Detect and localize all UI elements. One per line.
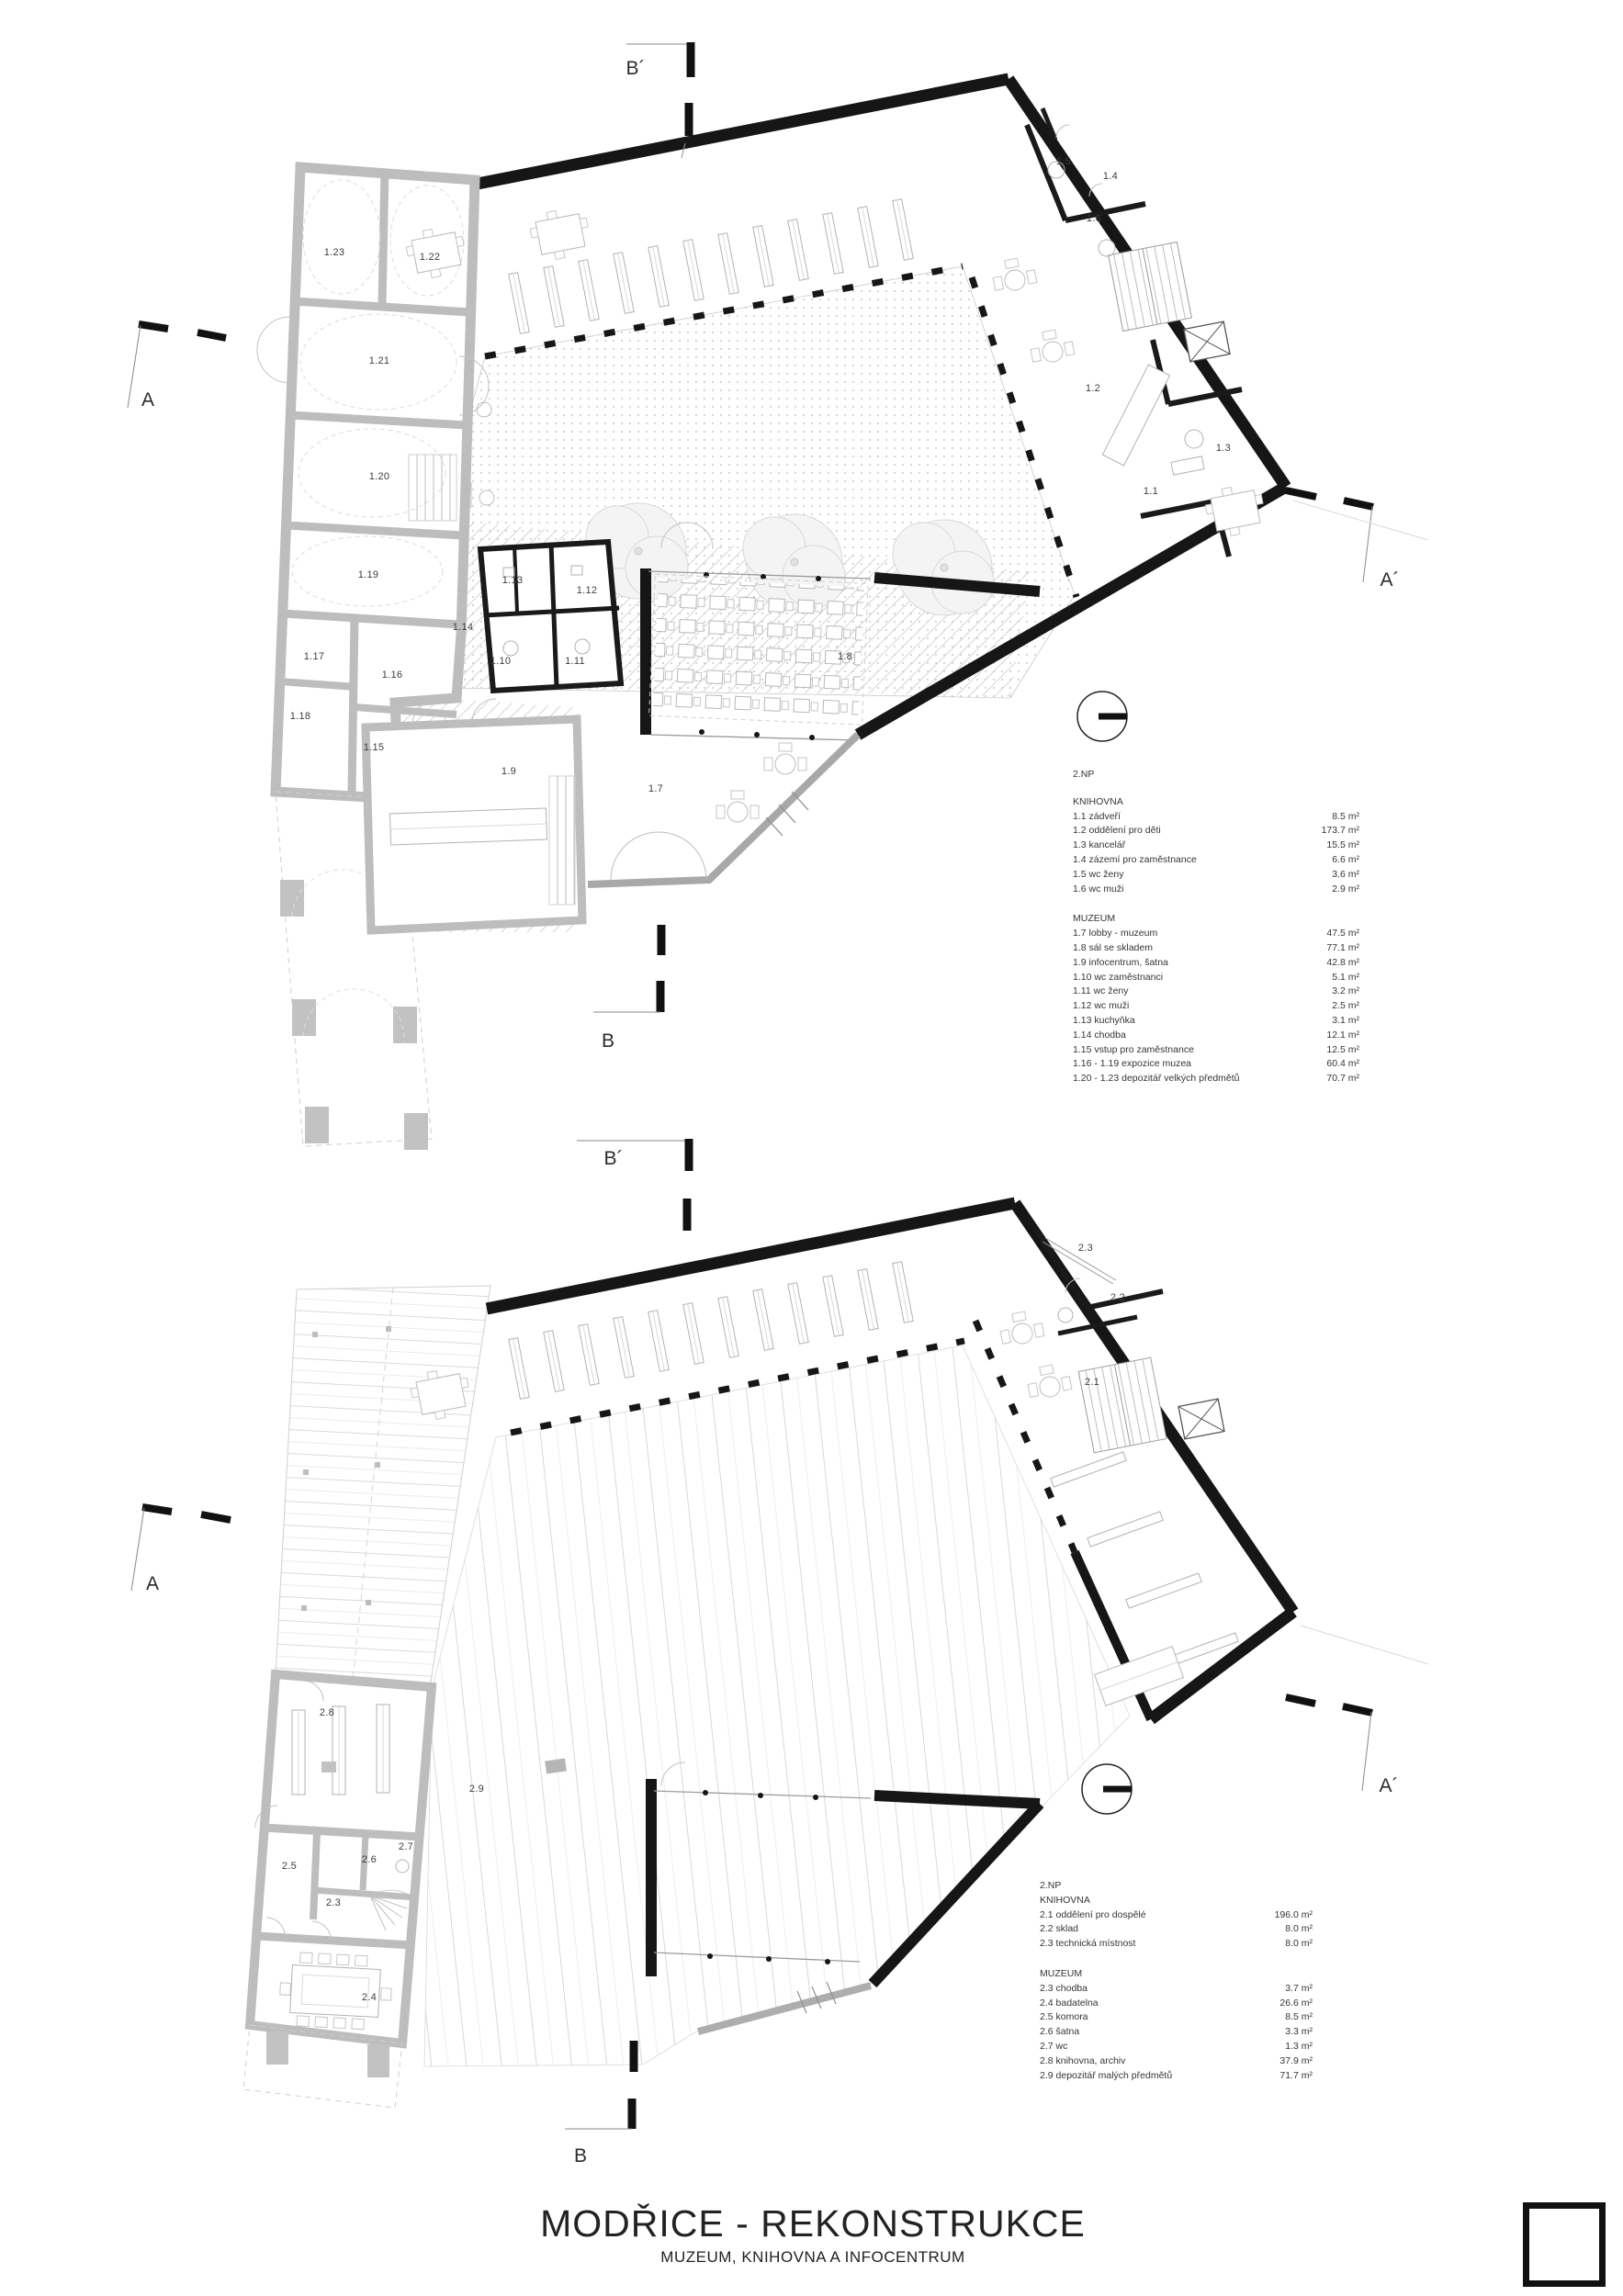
legend-room-name: 1.7 lobby - muzeum xyxy=(1073,927,1157,941)
legend-room-name: 2.3 chodba xyxy=(1040,1982,1088,1997)
legend-room-name: 1.1 zádveří xyxy=(1073,810,1121,825)
title-block: MODŘICE - REKONSTRUKCE MUZEUM, KNIHOVNA … xyxy=(331,2202,1295,2267)
legend-room-name: 1.10 wc zaměstnanci xyxy=(1073,971,1163,985)
sheet-title: MODŘICE - REKONSTRUKCE xyxy=(331,2202,1295,2245)
legend-room-name: 1.16 - 1.19 expozice muzea xyxy=(1073,1057,1191,1072)
legend-row: 2.9 depozitář malých předmětů71.7 m² xyxy=(1040,2069,1313,2084)
legend-room-name: 2.6 šatna xyxy=(1040,2025,1079,2040)
legend-room-name: 1.3 kancelář xyxy=(1073,838,1125,853)
legend-row: 2.3 chodba3.7 m² xyxy=(1040,1982,1313,1997)
legend-section-knihovna: KNIHOVNA1.1 zádveří8.5 m²1.2 oddělení pr… xyxy=(1073,795,1359,897)
legend-row: 1.3 kancelář15.5 m² xyxy=(1073,838,1359,853)
legend-room-name: 1.20 - 1.23 depozitář velkých předmětů xyxy=(1073,1072,1240,1086)
legend-room-name: 1.14 chodba xyxy=(1073,1029,1126,1043)
legend-room-area: 47.5 m² xyxy=(1326,927,1359,941)
legend-room-area: 37.9 m² xyxy=(1279,2054,1313,2069)
legend-room-area: 3.1 m² xyxy=(1332,1014,1359,1029)
legend-room-name: 2.5 komora xyxy=(1040,2010,1088,2025)
legend-heading: KNIHOVNA xyxy=(1073,795,1359,810)
legend-room-name: 2.9 depozitář malých předmětů xyxy=(1040,2069,1172,2084)
legend-room-area: 173.7 m² xyxy=(1322,824,1359,838)
legend-room-area: 15.5 m² xyxy=(1326,838,1359,853)
legend-row: 1.13 kuchyňka3.1 m² xyxy=(1073,1014,1359,1029)
legend-row: 1.4 zázemí pro zaměstnance6.6 m² xyxy=(1073,853,1359,868)
legend-heading: MUZEUM xyxy=(1040,1967,1313,1982)
legend-row: 2.8 knihovna, archiv37.9 m² xyxy=(1040,2054,1313,2069)
legend-row: 2.2 sklad8.0 m² xyxy=(1040,1922,1313,1937)
legend-row: 2.4 badatelna26.6 m² xyxy=(1040,1997,1313,2011)
legend-room-area: 42.8 m² xyxy=(1326,956,1359,971)
legend-room-name: 2.4 badatelna xyxy=(1040,1997,1099,2011)
legend-room-area: 8.5 m² xyxy=(1332,810,1359,825)
legend-room-area: 196.0 m² xyxy=(1275,1908,1313,1923)
legend-row: 1.8 sál se skladem77.1 m² xyxy=(1073,941,1359,956)
legend-row: 1.7 lobby - muzeum47.5 m² xyxy=(1073,927,1359,941)
legend-room-name: 2.2 sklad xyxy=(1040,1922,1078,1937)
title-block-square xyxy=(1523,2202,1606,2287)
legend-row: 1.11 wc ženy3.2 m² xyxy=(1073,985,1359,999)
legend-room-name: 1.6 wc muži xyxy=(1073,883,1123,897)
legend-room-name: 1.8 sál se skladem xyxy=(1073,941,1153,956)
legend-room-name: 2.3 technická místnost xyxy=(1040,1937,1135,1952)
legend-room-name: 1.5 wc ženy xyxy=(1073,868,1123,883)
legend-room-name: 1.4 zázemí pro zaměstnance xyxy=(1073,853,1197,868)
legend-row: 1.15 vstup pro zaměstnance12.5 m² xyxy=(1073,1043,1359,1058)
legend-room-area: 8.0 m² xyxy=(1285,1937,1313,1952)
legend-row: 1.20 - 1.23 depozitář velkých předmětů70… xyxy=(1073,1072,1359,1086)
legend-heading: KNIHOVNA xyxy=(1040,1894,1313,1908)
legend-room-name: 1.9 infocentrum, šatna xyxy=(1073,956,1168,971)
legend-room-area: 12.1 m² xyxy=(1326,1029,1359,1043)
legend-room-area: 71.7 m² xyxy=(1279,2069,1313,2084)
legend-room-area: 70.7 m² xyxy=(1326,1072,1359,1086)
legend-room-name: 2.7 wc xyxy=(1040,2040,1067,2054)
legend-row: 1.2 oddělení pro děti173.7 m² xyxy=(1073,824,1359,838)
legend-room-area: 12.5 m² xyxy=(1326,1043,1359,1058)
floor-plans-drawing xyxy=(0,0,1623,2296)
legend-row: 1.9 infocentrum, šatna42.8 m² xyxy=(1073,956,1359,971)
legend-room-area: 77.1 m² xyxy=(1326,941,1359,956)
legend-row: 1.1 zádveří8.5 m² xyxy=(1073,810,1359,825)
legend-row: 1.12 wc muži2.5 m² xyxy=(1073,999,1359,1014)
legend-room-area: 3.6 m² xyxy=(1332,868,1359,883)
legend-room-name: 1.2 oddělení pro děti xyxy=(1073,824,1161,838)
legend-plan-2: 2.NP KNIHOVNA2.1 oddělení pro dospělé196… xyxy=(1040,1879,1313,2099)
legend-plan-1: 2.NP KNIHOVNA1.1 zádveří8.5 m²1.2 odděle… xyxy=(1073,768,1359,1102)
legend-room-area: 6.6 m² xyxy=(1332,853,1359,868)
legend-room-area: 26.6 m² xyxy=(1279,1997,1313,2011)
legend-1-floor: 2.NP xyxy=(1073,768,1359,782)
legend-room-area: 8.0 m² xyxy=(1285,1922,1313,1937)
legend-room-area: 3.7 m² xyxy=(1285,1982,1313,1997)
drawing-sheet: 1.11.21.31.41.51.61.71.81.91.101.111.121… xyxy=(0,0,1623,2296)
legend-row: 2.3 technická místnost8.0 m² xyxy=(1040,1937,1313,1952)
legend-section-muzeum: MUZEUM2.3 chodba3.7 m²2.4 badatelna26.6 … xyxy=(1040,1967,1313,2083)
legend-section-knihovna: KNIHOVNA2.1 oddělení pro dospělé196.0 m²… xyxy=(1040,1894,1313,1952)
legend-room-name: 1.13 kuchyňka xyxy=(1073,1014,1135,1029)
orientation-symbol-2 xyxy=(1082,1764,1132,1814)
legend-row: 1.5 wc ženy3.6 m² xyxy=(1073,868,1359,883)
legend-2-floor: 2.NP xyxy=(1040,1879,1313,1894)
legend-row: 2.7 wc1.3 m² xyxy=(1040,2040,1313,2054)
legend-row: 2.1 oddělení pro dospělé196.0 m² xyxy=(1040,1908,1313,1923)
legend-room-area: 60.4 m² xyxy=(1326,1057,1359,1072)
legend-row: 1.10 wc zaměstnanci5.1 m² xyxy=(1073,971,1359,985)
orientation-symbol-1 xyxy=(1077,692,1127,741)
legend-room-area: 2.5 m² xyxy=(1332,999,1359,1014)
legend-row: 1.6 wc muži2.9 m² xyxy=(1073,883,1359,897)
legend-room-area: 3.3 m² xyxy=(1285,2025,1313,2040)
legend-room-name: 1.12 wc muži xyxy=(1073,999,1129,1014)
legend-room-area: 3.2 m² xyxy=(1332,985,1359,999)
legend-room-area: 2.9 m² xyxy=(1332,883,1359,897)
legend-row: 2.5 komora8.5 m² xyxy=(1040,2010,1313,2025)
legend-room-name: 1.11 wc ženy xyxy=(1073,985,1129,999)
legend-section-muzeum: MUZEUM1.7 lobby - muzeum47.5 m²1.8 sál s… xyxy=(1073,912,1359,1086)
legend-room-name: 2.8 knihovna, archiv xyxy=(1040,2054,1125,2069)
legend-row: 2.6 šatna3.3 m² xyxy=(1040,2025,1313,2040)
legend-room-name: 2.1 oddělení pro dospělé xyxy=(1040,1908,1146,1923)
sheet-subtitle: MUZEUM, KNIHOVNA A INFOCENTRUM xyxy=(331,2248,1295,2267)
legend-room-name: 1.15 vstup pro zaměstnance xyxy=(1073,1043,1194,1058)
legend-room-area: 1.3 m² xyxy=(1285,2040,1313,2054)
legend-row: 1.16 - 1.19 expozice muzea60.4 m² xyxy=(1073,1057,1359,1072)
legend-row: 1.14 chodba12.1 m² xyxy=(1073,1029,1359,1043)
legend-room-area: 5.1 m² xyxy=(1332,971,1359,985)
legend-heading: MUZEUM xyxy=(1073,912,1359,927)
legend-room-area: 8.5 m² xyxy=(1285,2010,1313,2025)
